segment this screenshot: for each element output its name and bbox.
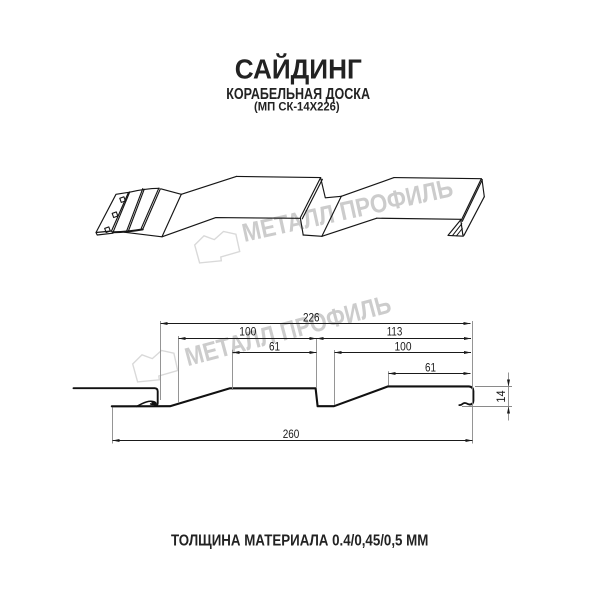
svg-text:ТОЛЩИНА МАТЕРИАЛА 0.4/0,45/0,5: ТОЛЩИНА МАТЕРИАЛА 0.4/0,45/0,5 ММ — [171, 532, 428, 549]
svg-text:КОРАБЕЛЬНАЯ ДОСКА: КОРАБЕЛЬНАЯ ДОСКА — [226, 86, 370, 103]
svg-text:113: 113 — [387, 325, 403, 338]
svg-text:61: 61 — [269, 340, 280, 353]
svg-text:100: 100 — [239, 325, 256, 338]
svg-text:226: 226 — [303, 311, 320, 324]
svg-text:(МП СК-14Х226): (МП СК-14Х226) — [254, 102, 340, 114]
svg-text:14: 14 — [495, 390, 508, 403]
svg-text:260: 260 — [283, 428, 300, 441]
svg-text:САЙДИНГ: САЙДИНГ — [235, 53, 362, 85]
svg-text:100: 100 — [395, 340, 412, 353]
svg-text:61: 61 — [425, 361, 436, 374]
